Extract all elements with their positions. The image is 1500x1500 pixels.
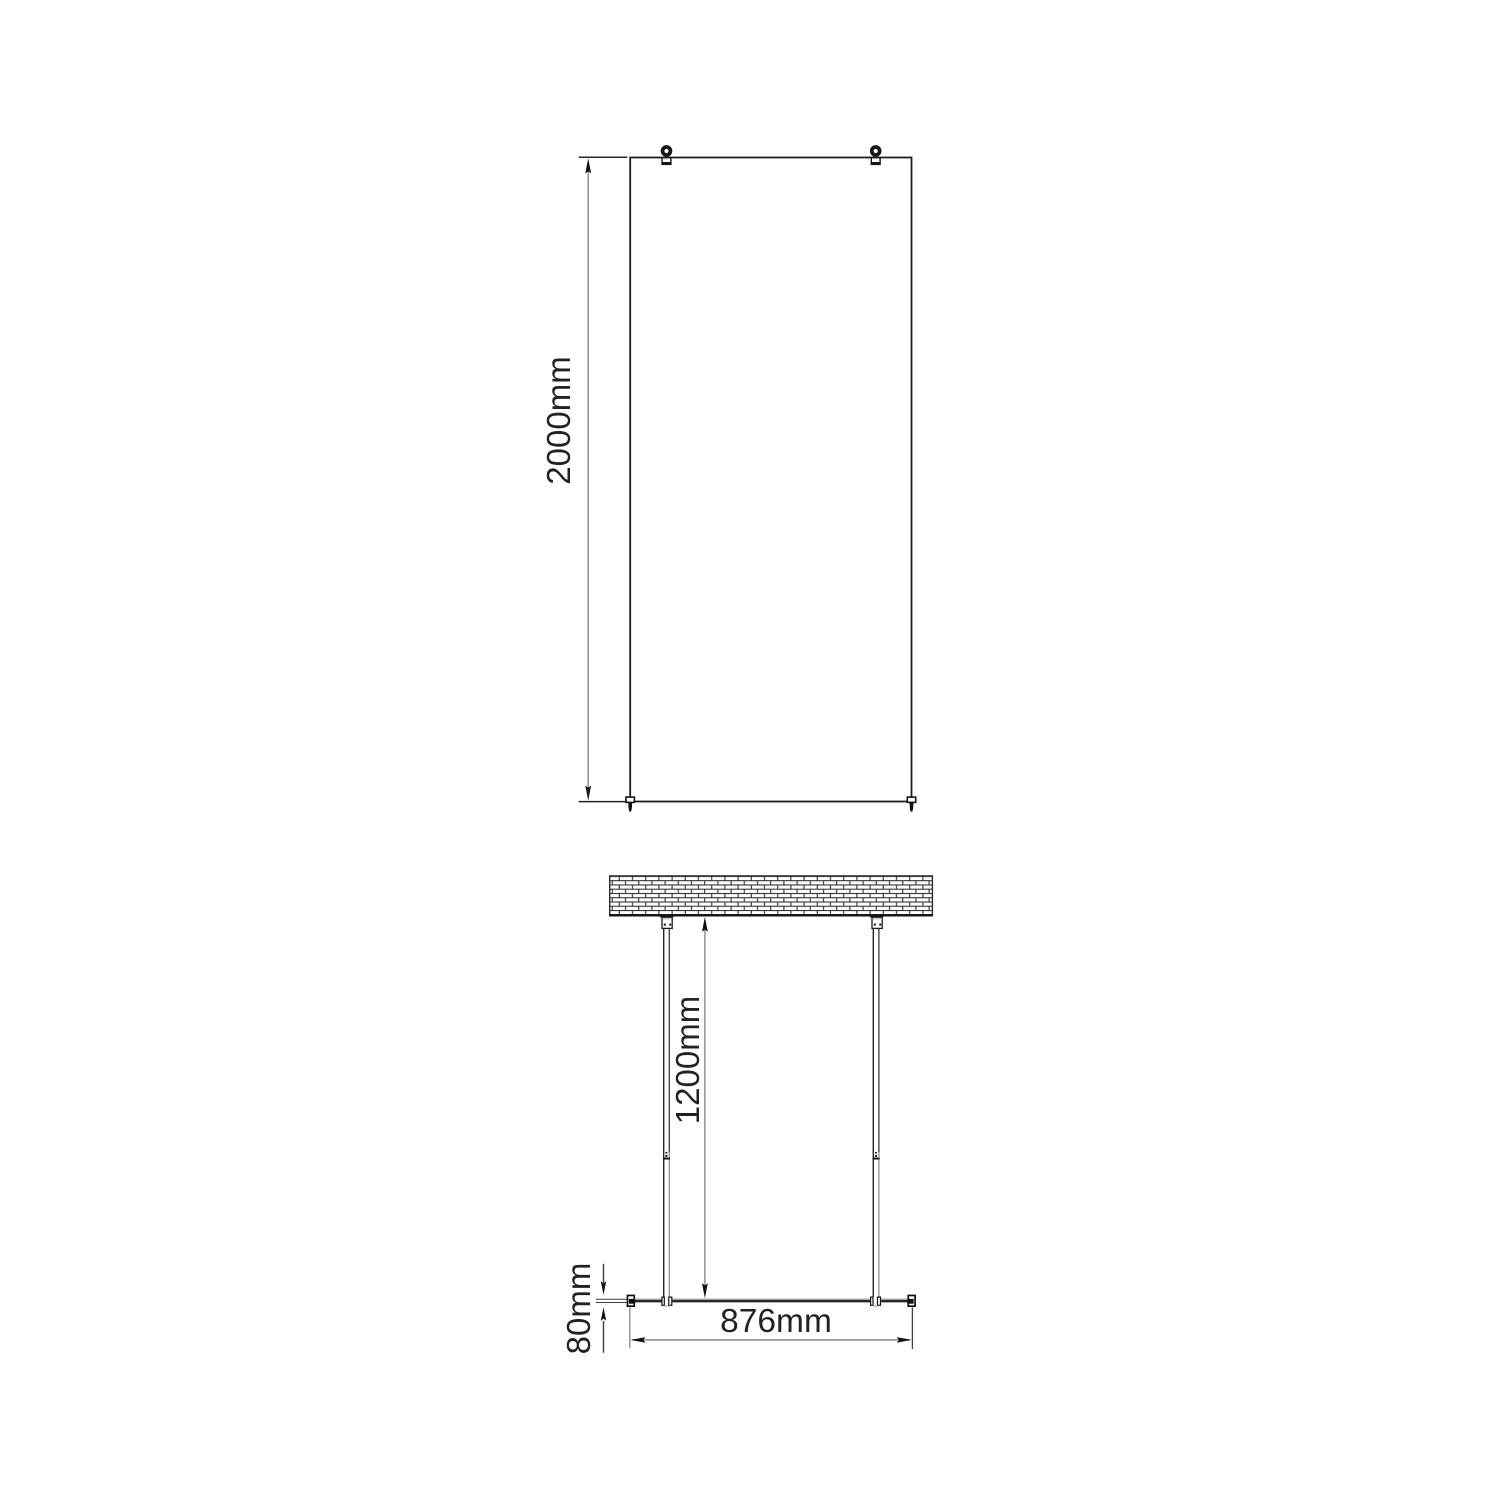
svg-text:2000mm: 2000mm: [540, 356, 577, 484]
svg-text:1200mm: 1200mm: [669, 996, 706, 1124]
svg-text:80mm: 80mm: [560, 1263, 597, 1355]
svg-text:876mm: 876mm: [720, 1303, 832, 1340]
